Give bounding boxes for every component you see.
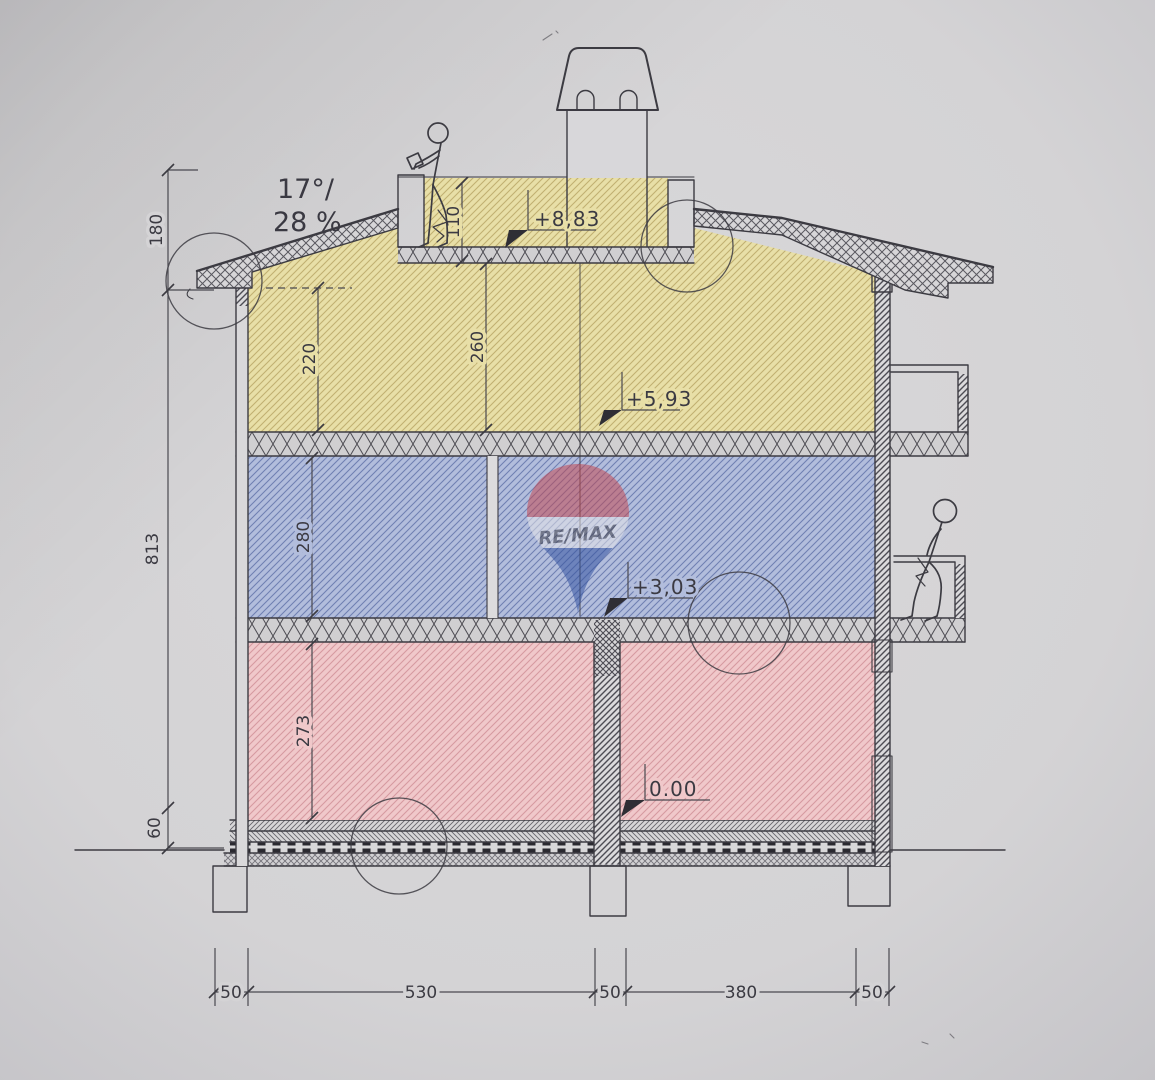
bottom-dim-50c-label: 50 [861,983,883,1003]
left-dim-813-label: 813 [143,533,163,565]
slope-degrees-label: 17°/ [277,174,335,205]
ground-slab [224,820,890,866]
bottom-dim-50a-label: 50 [220,983,242,1003]
left-dim-180-label: 180 [147,214,167,246]
cross-section-drawing: RE/MAX 180 813 60 50 530 50 380 50 110 2… [0,0,1155,1080]
bottom-dim-50b-label: 50 [599,983,621,1003]
elevation-upper-floor-label: +3,03 [632,575,698,599]
bottom-dim-380-label: 380 [725,983,757,1003]
scanned-drawing-page: RE/MAX 180 813 60 50 530 50 380 50 110 2… [0,0,1155,1080]
ground-floor-height-273-label: 273 [294,715,314,747]
elevation-ground-floor-label: 0.00 [649,777,698,801]
elevation-attic-floor-label: +5,93 [626,387,692,411]
attic-height-220-label: 220 [300,343,320,375]
upper-floor-height-280-label: 280 [294,521,314,553]
elevation-attic-top-label: +8,83 [534,207,600,231]
bottom-dim-530-label: 530 [405,983,437,1003]
slope-percent-label: 28 % [273,207,342,238]
attic-height-260-label: 260 [468,331,488,363]
ground-floor-area [248,642,875,820]
left-dim-60-label: 60 [145,817,165,839]
